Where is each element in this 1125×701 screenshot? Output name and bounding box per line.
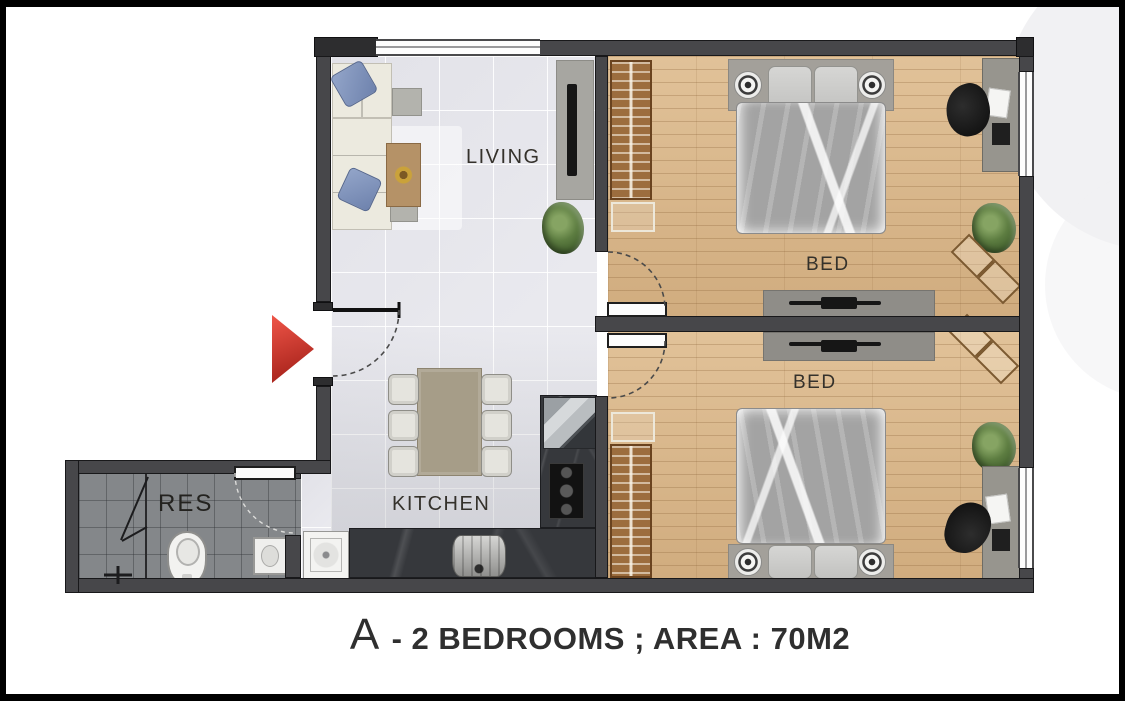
caption-plan-letter: A bbox=[350, 610, 379, 659]
bed2-duvet bbox=[736, 408, 886, 544]
dining-chair bbox=[388, 410, 419, 441]
wall-top-right-cap bbox=[1016, 37, 1034, 57]
dining-chair bbox=[481, 410, 512, 441]
washing-machine bbox=[303, 531, 349, 579]
room-label-bed2: BED bbox=[793, 372, 837, 394]
bed1-duvet bbox=[736, 102, 886, 234]
plant-living bbox=[542, 202, 584, 254]
dining-chair bbox=[481, 446, 512, 477]
floor-plan: LIVING KITCHEN RES BED BED A - 2 BEDROOM… bbox=[0, 0, 1125, 701]
bathroom-sink bbox=[253, 537, 287, 575]
cooktop-stove bbox=[549, 463, 584, 519]
desk-laptop bbox=[992, 123, 1010, 145]
room-label-kitchen: KITCHEN bbox=[392, 493, 490, 516]
wall-left-upper bbox=[316, 56, 331, 302]
bed2-pillow bbox=[768, 545, 812, 579]
tv-bed1-center bbox=[821, 297, 857, 309]
room-label-res: RES bbox=[158, 490, 213, 518]
entrance-arrow-icon bbox=[272, 315, 314, 383]
plant-bed2 bbox=[972, 422, 1016, 472]
nightstand-lamp bbox=[734, 71, 762, 99]
wall-bathroom-top bbox=[65, 460, 331, 474]
wardrobe-bed1 bbox=[610, 60, 652, 200]
wall-top-left-cap bbox=[314, 37, 378, 57]
frame-top bbox=[0, 0, 1125, 7]
wall-bathroom-right-stub bbox=[285, 473, 301, 479]
wall-bottom bbox=[65, 578, 1034, 593]
entry-door-jamb bbox=[313, 302, 333, 311]
wall-divider-living-beds-lower bbox=[595, 396, 608, 578]
nightstand-lamp bbox=[858, 71, 886, 99]
toilet bbox=[167, 531, 207, 585]
frame-left bbox=[0, 0, 6, 701]
wall-bathroom-right-lower bbox=[285, 535, 301, 578]
corner-sink bbox=[543, 397, 597, 449]
nightstand-lamp bbox=[734, 548, 762, 576]
gas-cylinder bbox=[452, 535, 506, 577]
sink-basin bbox=[261, 545, 279, 567]
wall-divider-living-beds-upper bbox=[595, 56, 608, 252]
wall-divider-bed1-bed2 bbox=[595, 316, 1034, 332]
wall-right-middle bbox=[1019, 176, 1034, 468]
dining-chair bbox=[481, 374, 512, 405]
dining-table bbox=[417, 368, 482, 476]
desk-laptop bbox=[992, 529, 1010, 551]
room-label-bed1: BED bbox=[806, 254, 850, 276]
entry-door-jamb bbox=[313, 377, 333, 386]
caption-plan-text: - 2 BEDROOMS ; AREA : 70M2 bbox=[392, 621, 851, 656]
toilet-bowl bbox=[176, 538, 200, 566]
window-living-top bbox=[376, 39, 540, 56]
room-label-living: LIVING bbox=[466, 146, 541, 169]
window-bed1 bbox=[1018, 72, 1034, 176]
frame-right bbox=[1119, 0, 1125, 701]
wall-right-upper bbox=[1019, 56, 1034, 72]
dresser-bed1 bbox=[611, 202, 655, 232]
frame-bottom bbox=[0, 694, 1125, 701]
wall-bathroom-left bbox=[65, 460, 79, 593]
caption: A - 2 BEDROOMS ; AREA : 70M2 bbox=[85, 610, 1115, 660]
tv-bed2-center bbox=[821, 340, 857, 352]
dining-chair bbox=[388, 374, 419, 405]
sofa-side-table bbox=[392, 88, 422, 116]
dining-chair bbox=[388, 446, 419, 477]
wardrobe-bed2 bbox=[610, 444, 652, 578]
window-bed2 bbox=[1018, 468, 1034, 568]
dresser-bed2 bbox=[611, 412, 655, 442]
bed2-pillow bbox=[814, 545, 858, 579]
nightstand-lamp bbox=[858, 548, 886, 576]
tv-living bbox=[567, 84, 577, 176]
coffee-table bbox=[386, 143, 421, 207]
